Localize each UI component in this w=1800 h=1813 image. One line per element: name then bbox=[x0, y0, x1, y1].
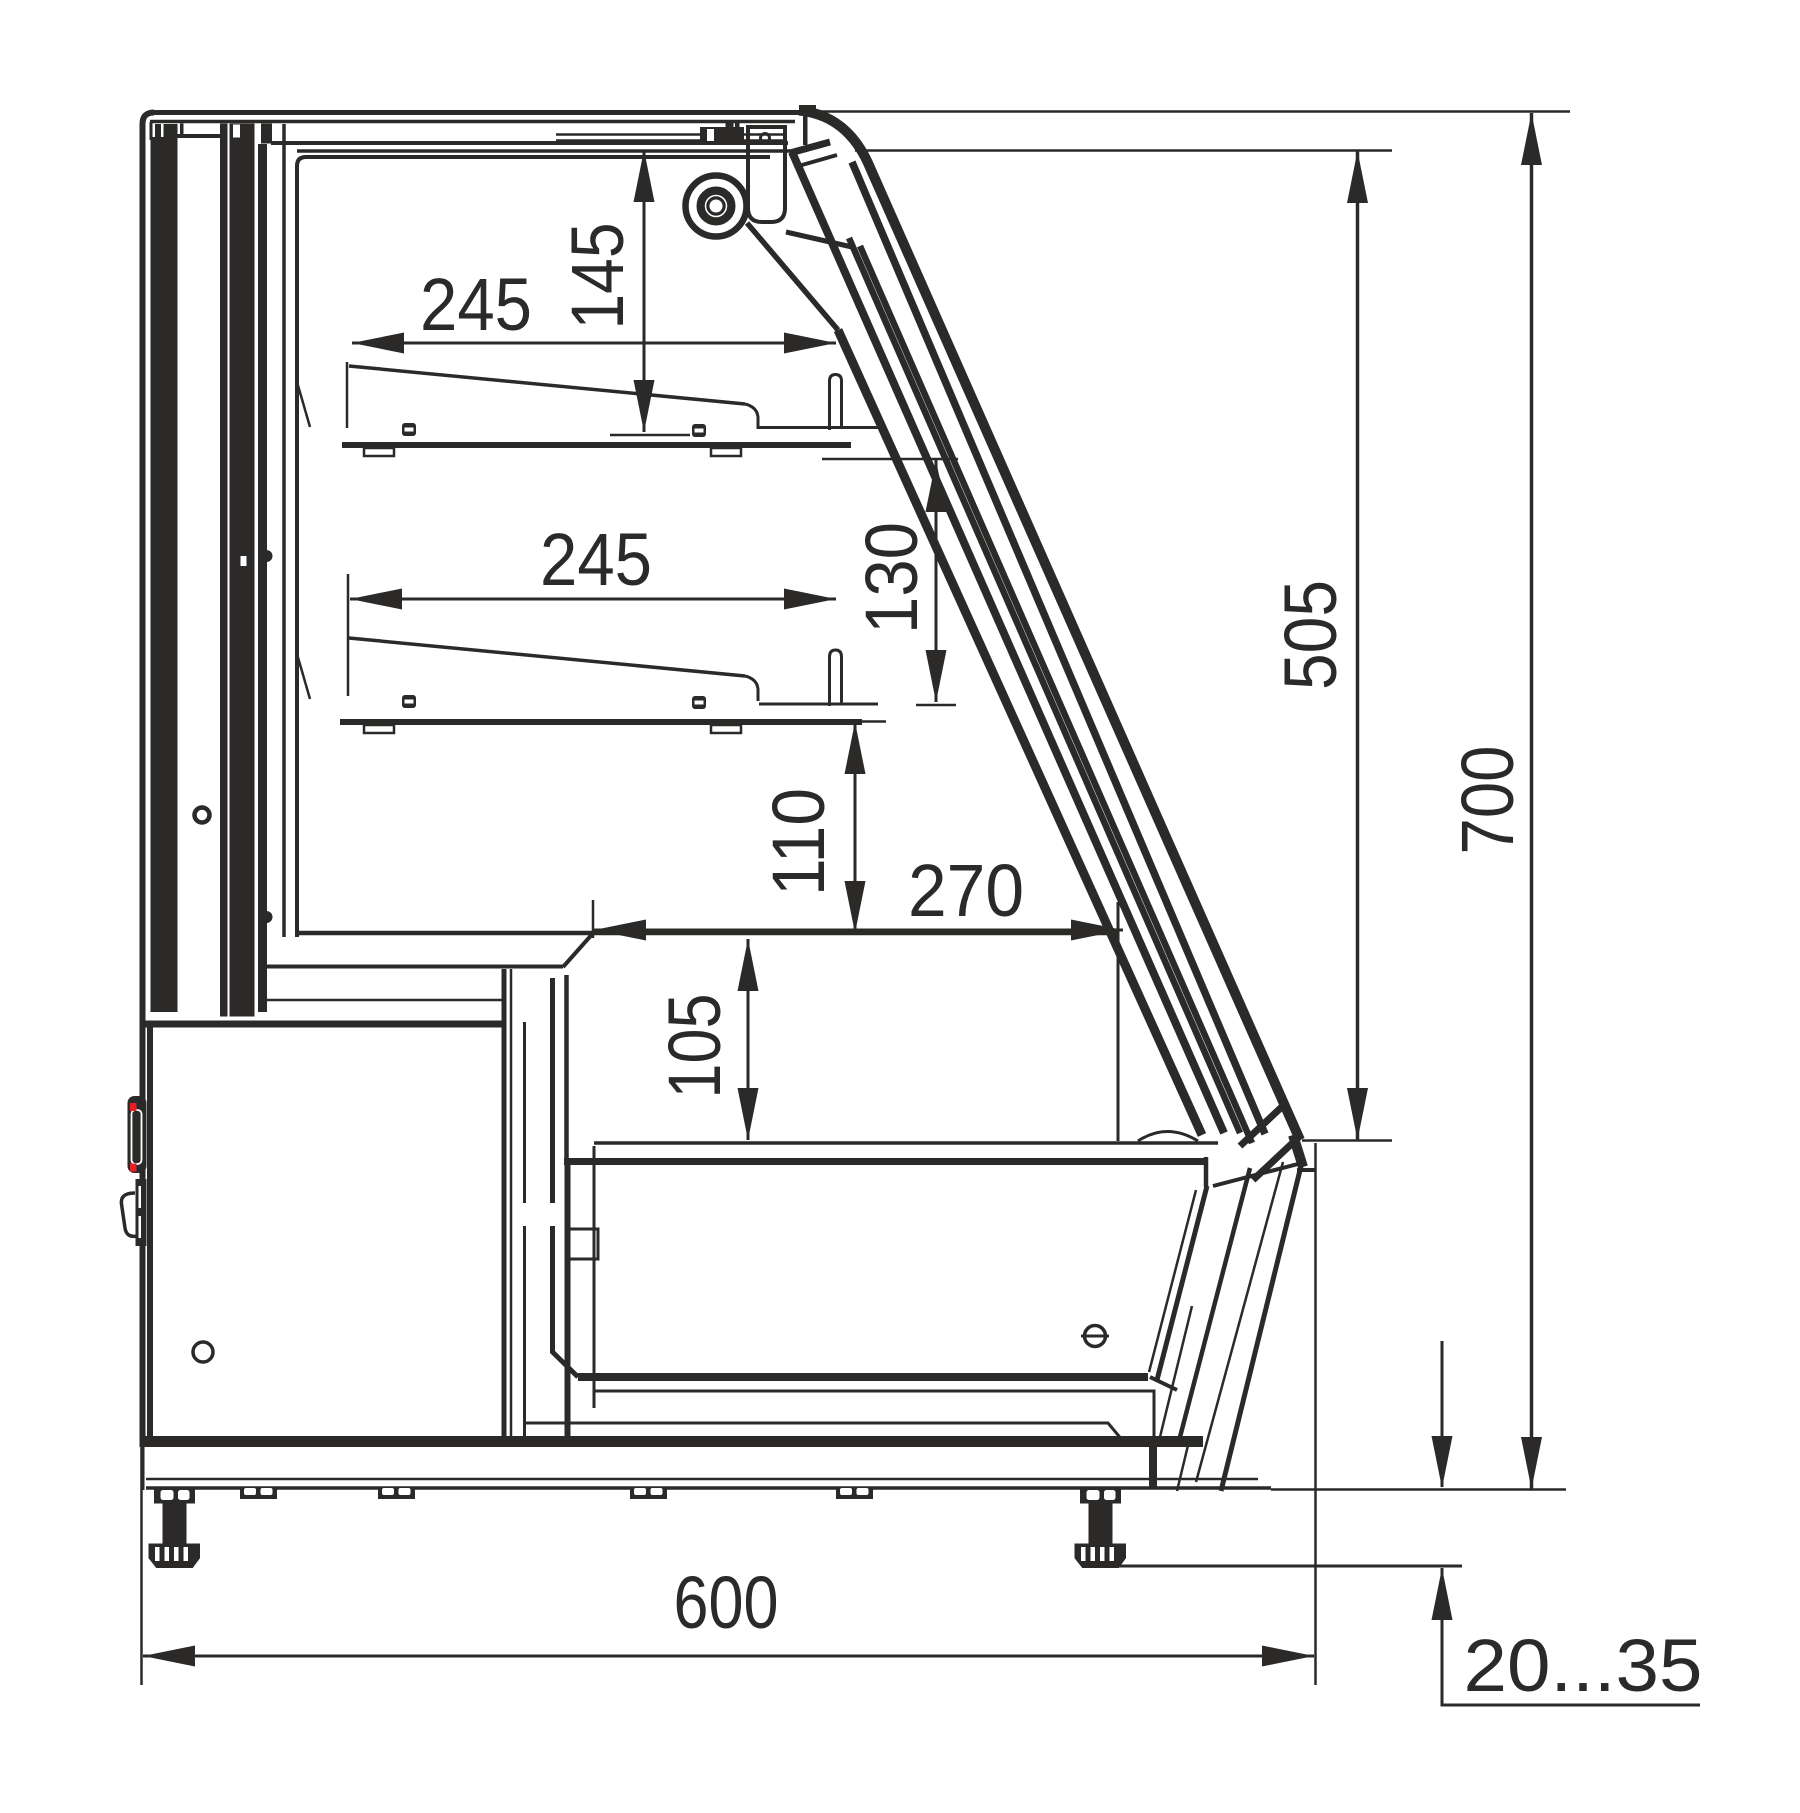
svg-text:505: 505 bbox=[1269, 580, 1352, 690]
svg-text:130: 130 bbox=[850, 522, 933, 634]
svg-text:245: 245 bbox=[420, 263, 532, 346]
svg-text:105: 105 bbox=[653, 994, 736, 1099]
svg-text:270: 270 bbox=[908, 849, 1024, 932]
svg-text:20...35: 20...35 bbox=[1464, 1624, 1703, 1707]
svg-text:600: 600 bbox=[674, 1561, 779, 1644]
svg-text:245: 245 bbox=[540, 518, 652, 601]
svg-text:145: 145 bbox=[556, 223, 639, 330]
svg-text:110: 110 bbox=[757, 788, 840, 896]
svg-text:700: 700 bbox=[1446, 746, 1529, 855]
